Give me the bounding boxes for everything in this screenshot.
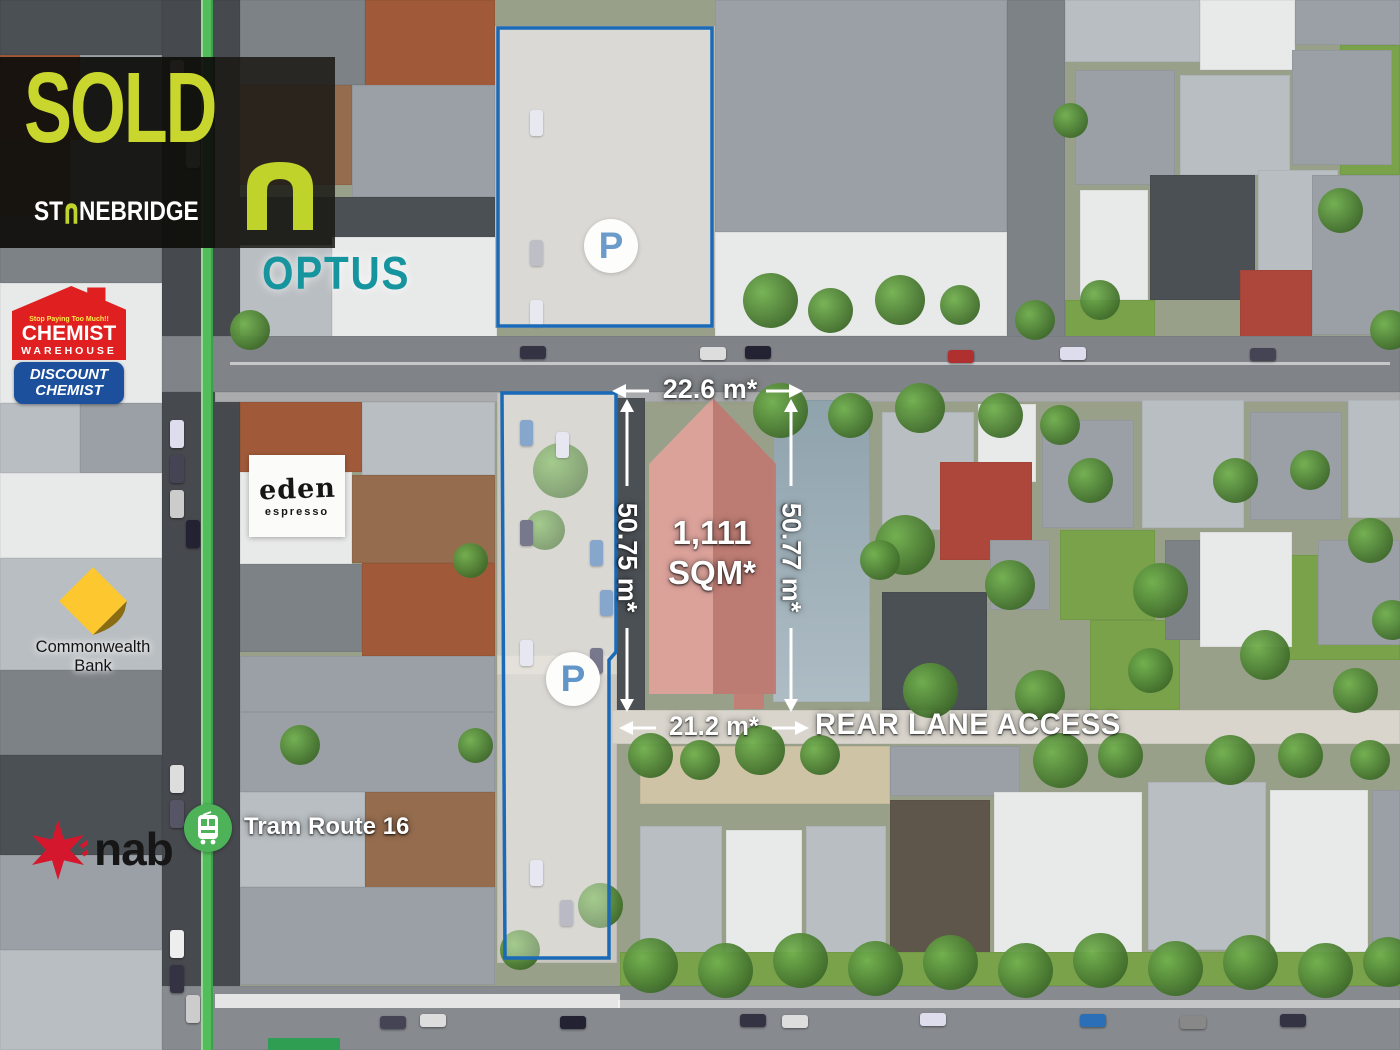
sold-status-text: SOLD bbox=[24, 58, 215, 158]
aerial-site-plan: P P 22.6 m* 21.2 m* 50.75 m* 50.77 m* 1,… bbox=[0, 0, 1400, 1050]
nab-logo: nab bbox=[28, 820, 88, 885]
rear-width-dimension: 21.2 m* bbox=[648, 711, 781, 742]
stonebridge-arch-glyph bbox=[64, 203, 78, 224]
agency-suffix: NEBRIDGE bbox=[79, 198, 199, 225]
discount-chemist-box: DISCOUNT CHEMIST bbox=[14, 362, 124, 404]
discount-line2: CHEMIST bbox=[35, 383, 103, 400]
chemist-warehouse-house-shape: Stop Paying Too Much!! CHEMIST WAREHOUSE bbox=[12, 286, 126, 360]
stonebridge-arch-logo bbox=[243, 162, 317, 230]
commbank-diamond-icon bbox=[58, 566, 128, 636]
tram-icon bbox=[193, 811, 223, 845]
eden-espresso-sign: eden espresso bbox=[249, 455, 345, 537]
rear-lane-access-label: REAR LANE ACCESS bbox=[815, 708, 1121, 742]
front-width-dimension: 22.6 m* bbox=[640, 374, 780, 405]
site-area-label: 1,111 SQM* bbox=[643, 513, 781, 592]
eden-line1: eden bbox=[258, 473, 336, 507]
nab-star-icon bbox=[28, 820, 88, 880]
parking-area-north-outline bbox=[498, 28, 712, 326]
discount-line1: DISCOUNT bbox=[30, 367, 108, 384]
chemist-name-line2: WAREHOUSE bbox=[21, 345, 117, 357]
property-rear-stub bbox=[734, 694, 764, 709]
chemist-name-line1: CHEMIST bbox=[22, 323, 117, 344]
site-area-value: 1,111 bbox=[643, 513, 781, 553]
nab-label: nab bbox=[94, 822, 173, 876]
commbank-label: Commonwealth Bank bbox=[15, 638, 171, 676]
chemist-warehouse-logo: Stop Paying Too Much!! CHEMIST WAREHOUSE… bbox=[12, 286, 128, 402]
agency-prefix: ST bbox=[34, 198, 63, 225]
stonebridge-wordmark: ST NEBRIDGE bbox=[34, 198, 199, 225]
tram-stop-badge bbox=[184, 804, 232, 852]
site-area-unit: SQM* bbox=[643, 553, 781, 593]
tram-route-label: Tram Route 16 bbox=[244, 813, 409, 841]
left-depth-dimension: 50.75 m* bbox=[612, 478, 643, 638]
parking-area-west-outline bbox=[502, 393, 616, 958]
eden-line2: espresso bbox=[265, 506, 329, 518]
optus-rooftop-sign: OPTUS bbox=[262, 246, 410, 300]
